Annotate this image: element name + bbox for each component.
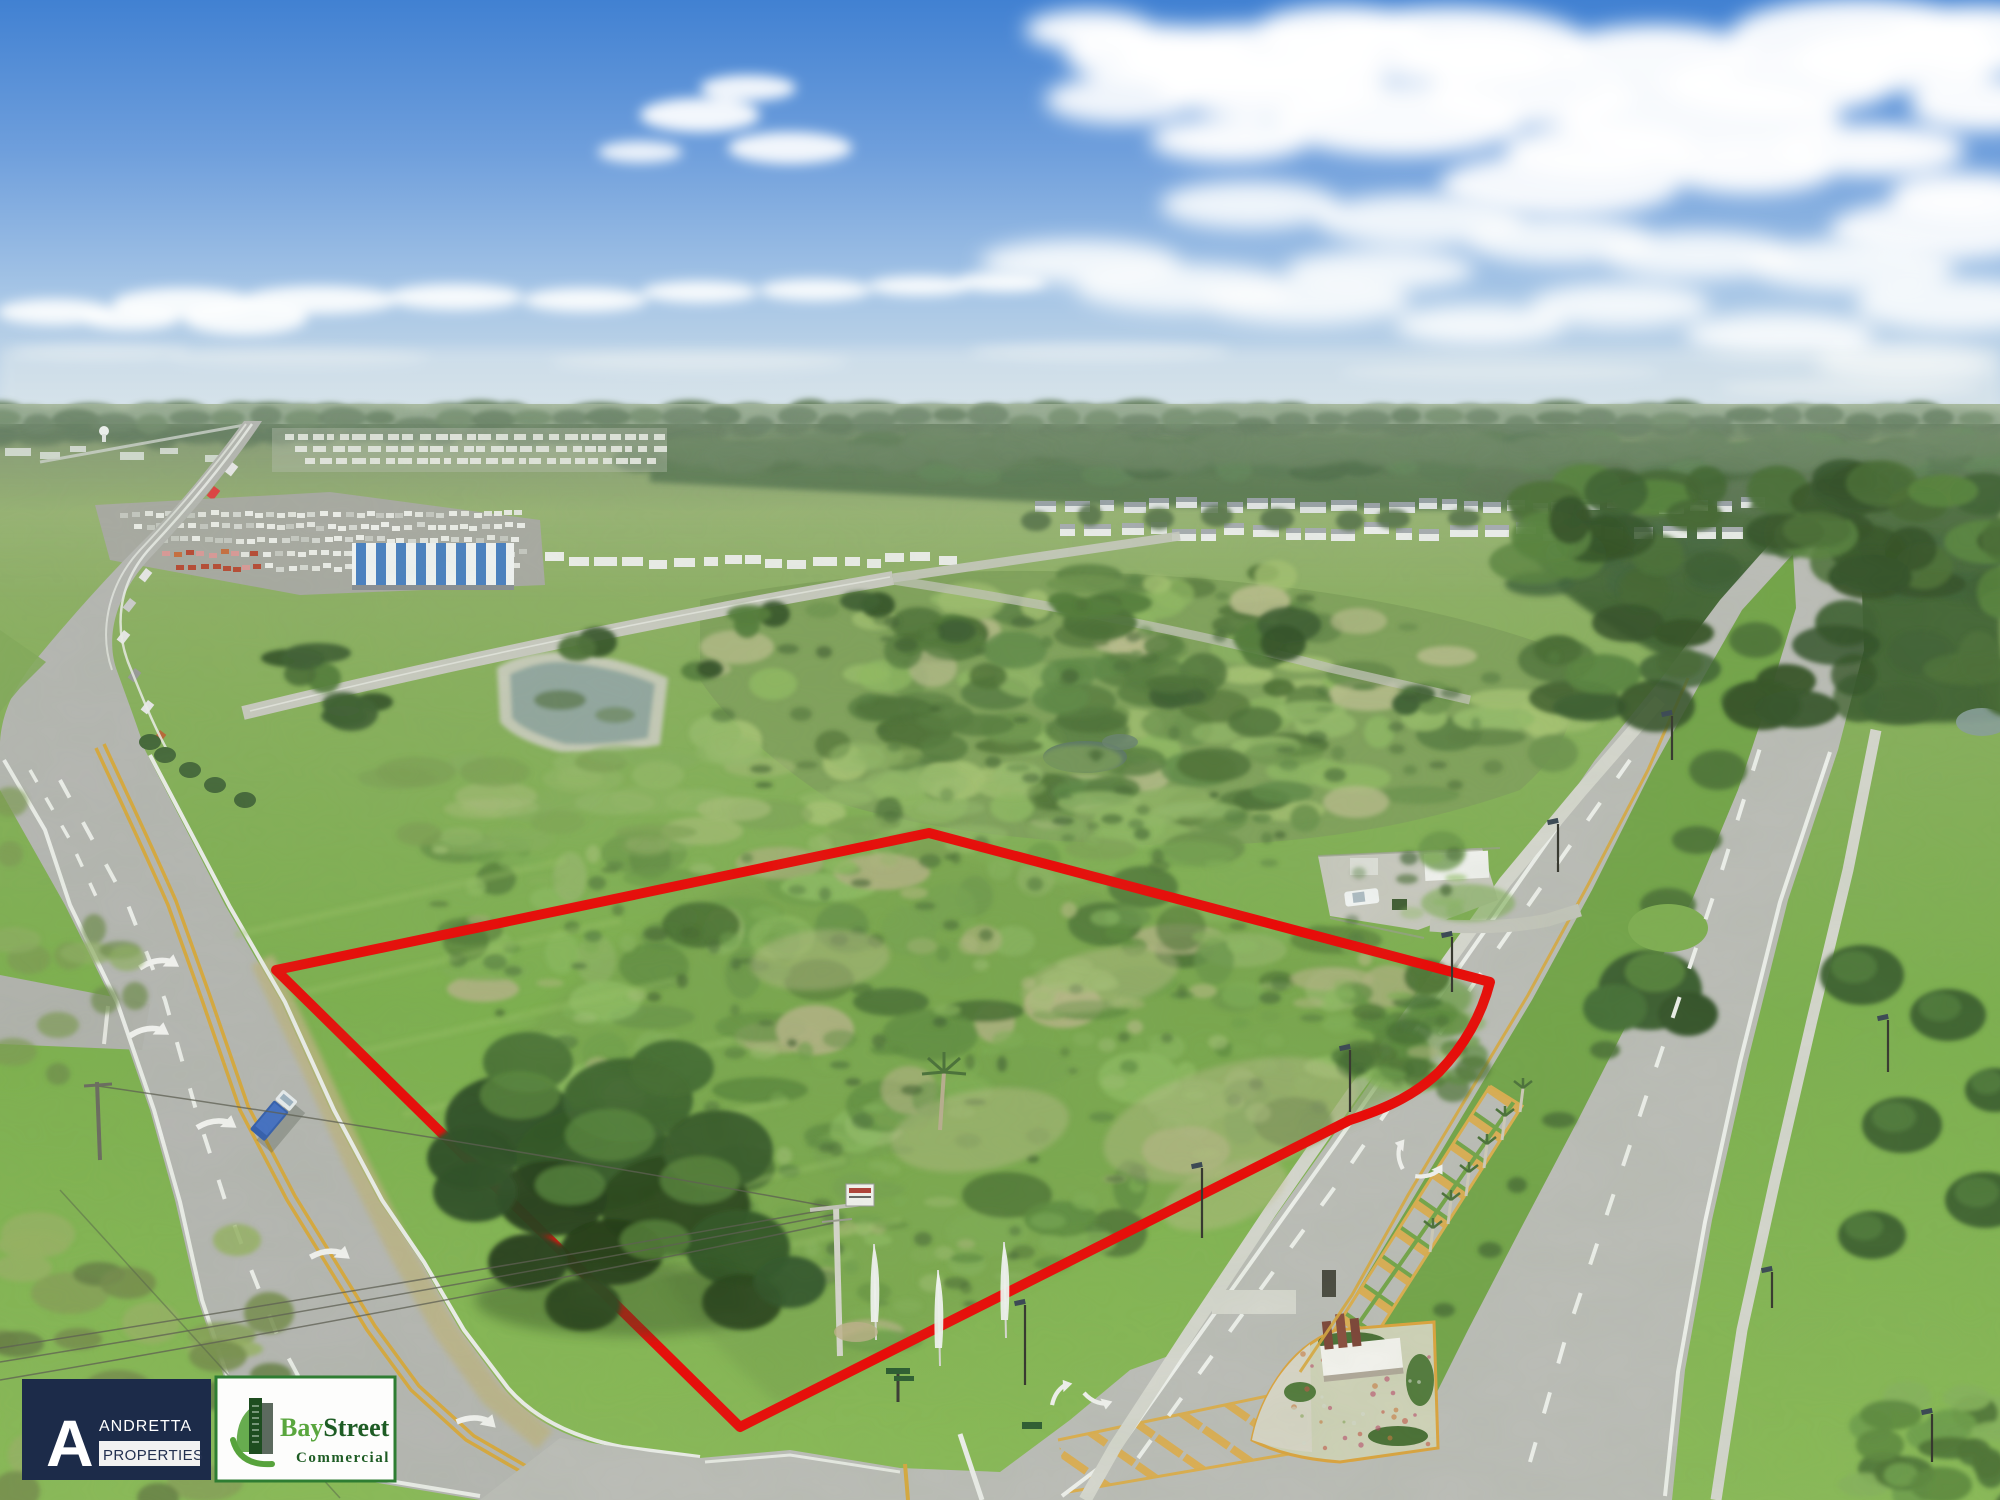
svg-text:A: A [46,1406,94,1480]
svg-text:PROPERTIES: PROPERTIES [103,1447,203,1464]
svg-text:BayStreet: BayStreet [280,1413,390,1442]
svg-text:ANDRETTA: ANDRETTA [99,1418,192,1435]
svg-text:Commercial: Commercial [296,1450,390,1466]
